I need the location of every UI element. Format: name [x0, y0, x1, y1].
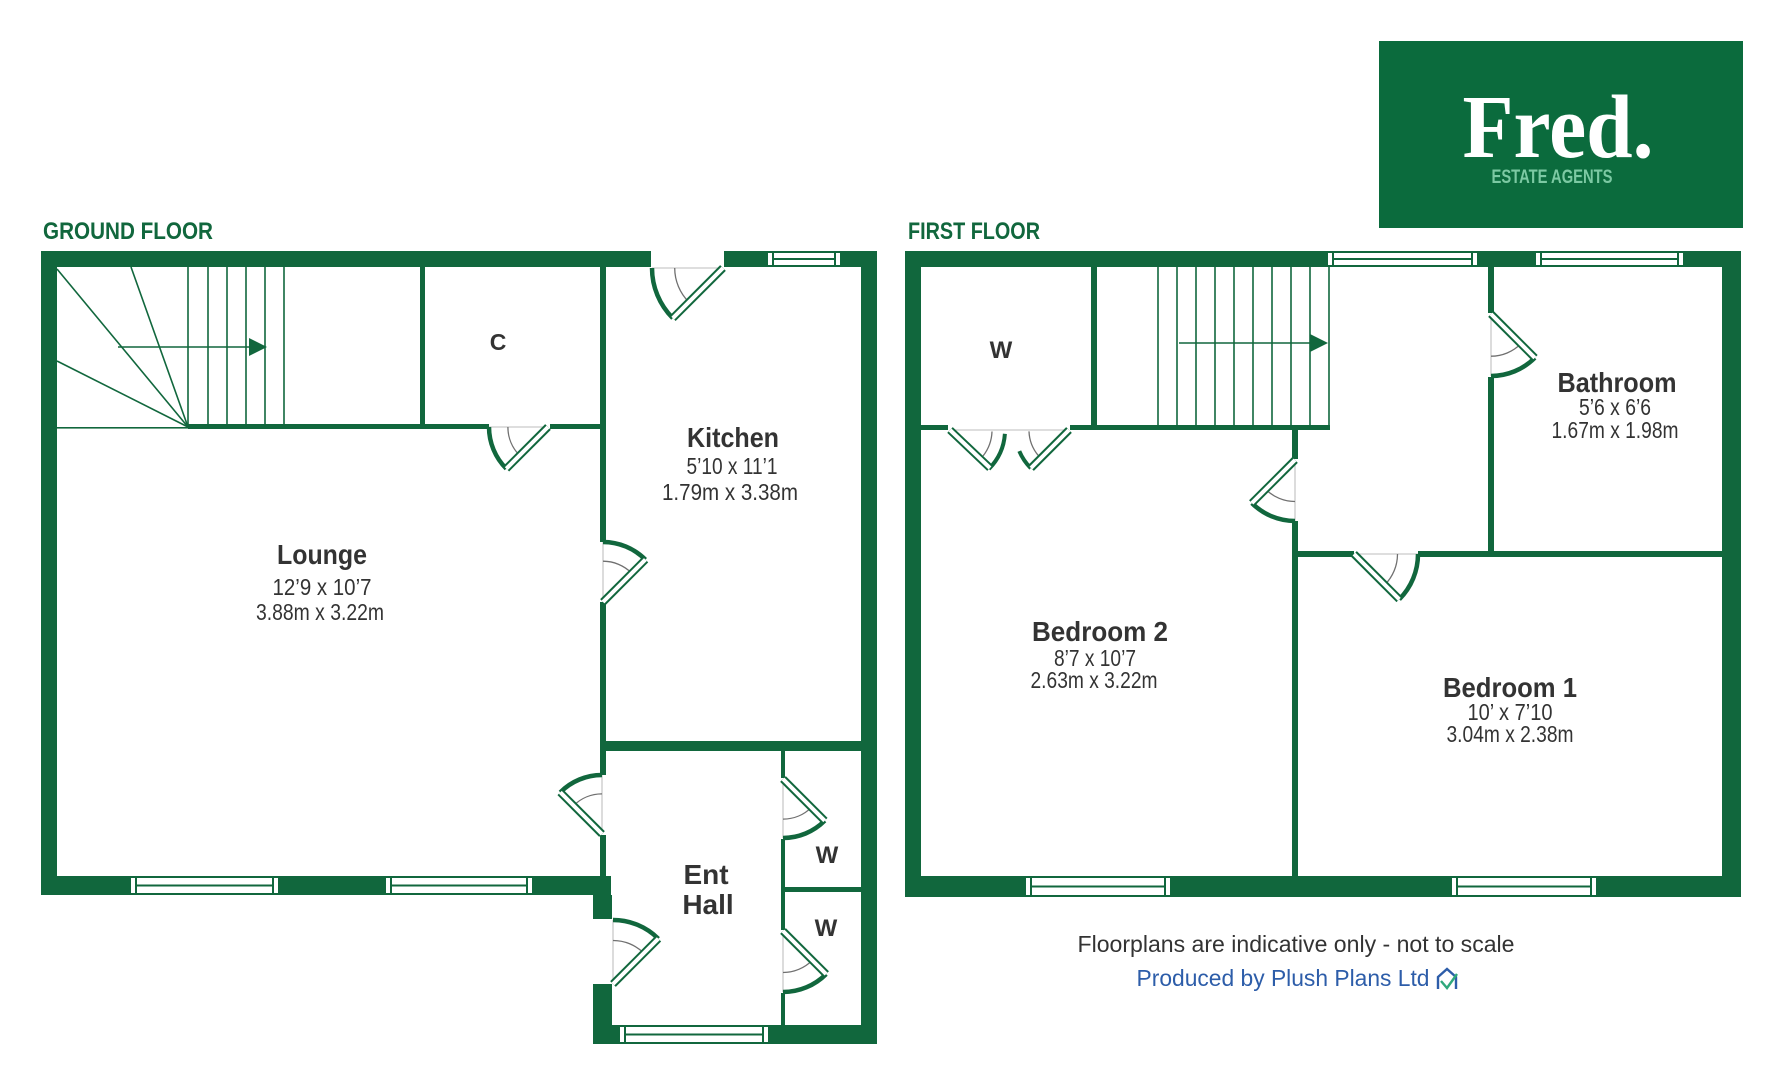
- svg-text:12’9 x 10’7: 12’9 x 10’7: [273, 574, 372, 600]
- svg-text:C: C: [490, 329, 507, 355]
- svg-text:FIRST FLOOR: FIRST FLOOR: [908, 218, 1040, 245]
- svg-text:2.63m x 3.22m: 2.63m x 3.22m: [1031, 667, 1158, 693]
- svg-text:W: W: [990, 337, 1013, 364]
- svg-text:ESTATE AGENTS: ESTATE AGENTS: [1492, 167, 1613, 188]
- svg-text:Lounge: Lounge: [277, 539, 367, 570]
- svg-text:3.04m x 2.38m: 3.04m x 2.38m: [1447, 721, 1574, 747]
- svg-text:Floorplans are indicative only: Floorplans are indicative only - not to …: [1078, 931, 1515, 957]
- svg-text:Bedroom 2: Bedroom 2: [1032, 616, 1168, 647]
- svg-text:Ent: Ent: [683, 859, 728, 890]
- svg-text:Produced by Plush Plans Ltd: Produced by Plush Plans Ltd: [1137, 965, 1430, 991]
- svg-text:3.88m x 3.22m: 3.88m x 3.22m: [256, 599, 384, 625]
- svg-text:5’10 x 11’1: 5’10 x 11’1: [687, 453, 778, 479]
- svg-text:W: W: [816, 842, 839, 869]
- svg-text:Hall: Hall: [682, 889, 733, 920]
- svg-text:1.79m x 3.38m: 1.79m x 3.38m: [662, 479, 798, 505]
- svg-text:1.67m x 1.98m: 1.67m x 1.98m: [1552, 417, 1679, 443]
- svg-text:W: W: [815, 915, 838, 942]
- svg-text:Kitchen: Kitchen: [687, 422, 779, 453]
- svg-text:GROUND FLOOR: GROUND FLOOR: [43, 218, 213, 245]
- svg-text:Fred.: Fred.: [1463, 78, 1654, 177]
